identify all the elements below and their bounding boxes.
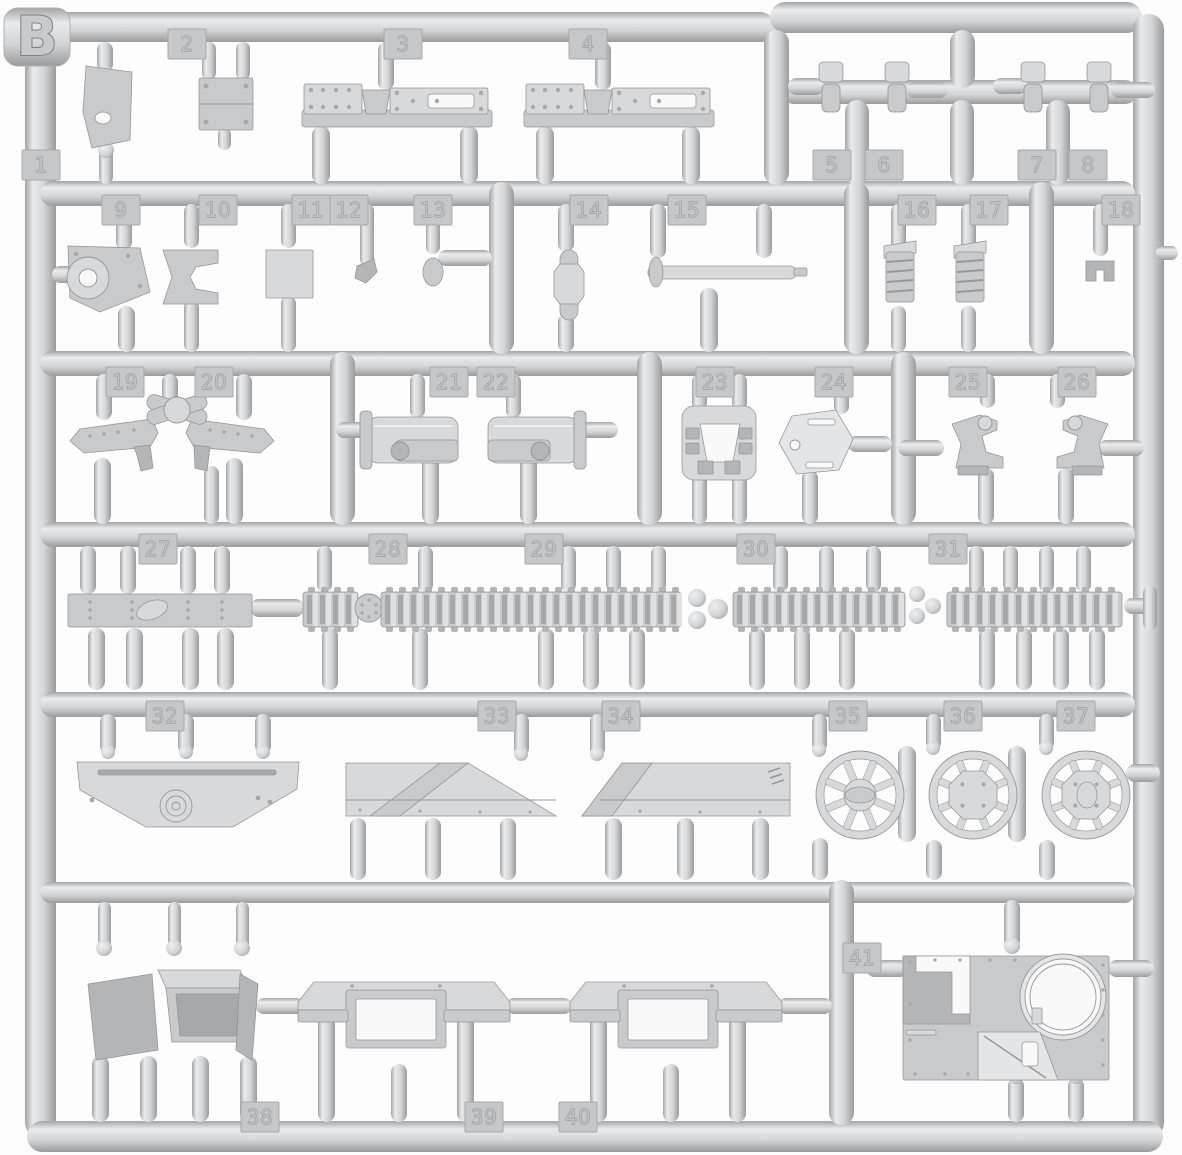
part-number: 20 [201, 370, 227, 394]
sprue-gate-stub [1098, 440, 1144, 456]
rivet-dot [908, 1038, 911, 1041]
sprue-gate-stub [605, 818, 622, 880]
rivet-dot [988, 958, 991, 961]
sprue-runner-bar [829, 880, 854, 1125]
sprue-gate-stub [218, 128, 231, 150]
part-tag-26: 26 [1058, 367, 1096, 397]
rivet-dot [244, 84, 249, 89]
part-detail [362, 90, 390, 114]
ball-joint-stub [514, 747, 528, 761]
sprue-gate-stub [120, 546, 136, 594]
sprue-gate-stub [819, 546, 834, 592]
part-detail [95, 112, 111, 124]
part-number: 2 [180, 32, 193, 56]
ball-joint-stub [101, 745, 115, 759]
part-number: 28 [375, 537, 401, 561]
sprue-gate-stub [969, 546, 984, 592]
sprue-gate-stub [226, 458, 243, 524]
part-detail [808, 419, 835, 425]
part-detail [978, 416, 992, 430]
ball-joint-stub [708, 599, 728, 619]
sprue-runner-bar [330, 352, 355, 525]
part-tag-1: 1 [22, 150, 60, 180]
part-tag-3: 3 [384, 29, 422, 59]
part-tag-33: 33 [478, 701, 516, 731]
rivet-dot [130, 600, 134, 604]
part-number: 39 [471, 1105, 497, 1129]
sprue-gate-stub [500, 818, 516, 880]
rivet-dot [531, 105, 535, 109]
part-tag-11: 11 [292, 195, 330, 225]
rivet-dot [908, 1002, 911, 1005]
sprue-gate-stub [1053, 628, 1069, 690]
rivet-dot [633, 99, 637, 103]
rivet-dot [116, 430, 120, 434]
part-detail [574, 411, 586, 469]
sprue-gate-stub [425, 818, 441, 880]
part-number: 3 [396, 32, 409, 56]
sprue-gate-stub [438, 250, 492, 266]
part-15 [648, 266, 796, 279]
part-detail [531, 442, 549, 460]
sprue-gate-stub [926, 840, 942, 880]
sprue-gate-stub [1126, 764, 1160, 782]
sprue-gate-stub [788, 78, 824, 95]
rivet-dot [130, 616, 134, 620]
part-number: 34 [608, 704, 634, 728]
part-8 [1087, 62, 1111, 82]
sprue-gate-stub [88, 628, 105, 690]
rivet-dot [698, 810, 701, 813]
rivet-dot [236, 432, 240, 436]
part-18 [1086, 261, 1114, 281]
sprue-gate-stub [677, 818, 694, 880]
part-detail [554, 264, 584, 304]
sprue-gate-stub [802, 470, 818, 524]
sprue-runner-bar [40, 882, 1135, 903]
sprue-gate-stub [506, 998, 572, 1014]
rivet-dot [250, 434, 254, 438]
rivet-dot [701, 91, 705, 95]
part-tag-14: 14 [570, 195, 608, 225]
rivet-dot [374, 603, 377, 606]
rivet-dot [268, 800, 273, 805]
rivet-dot [479, 91, 483, 95]
part-detail [1072, 466, 1102, 475]
rivet-dot [617, 91, 621, 95]
part-tag-34: 34 [602, 701, 640, 731]
rivet-dot [367, 615, 370, 618]
rivet-dot [321, 105, 325, 109]
rivet-dot [701, 107, 705, 111]
rivet-dot [88, 434, 92, 438]
ball-joint-stub [590, 747, 604, 761]
part-tag-25: 25 [949, 367, 987, 397]
part-number: 17 [976, 198, 1002, 222]
part-tag-9: 9 [102, 195, 140, 225]
part-detail [158, 970, 248, 988]
part-tag-29: 29 [525, 534, 563, 564]
part-detail [725, 461, 740, 474]
sprue-gate-stub [1076, 546, 1091, 592]
part-detail [716, 1010, 782, 1022]
rivet-dot [556, 105, 560, 109]
rivet-dot [622, 984, 626, 988]
sprue-gate-stub [979, 628, 995, 690]
rivet-dot [569, 105, 573, 109]
sprue-gate-stub [391, 1064, 407, 1122]
rivet-dot [204, 120, 209, 125]
part-detail [176, 994, 240, 1036]
sprue-gate-stub [961, 306, 976, 352]
rivet-dot [958, 958, 961, 961]
part-detail [356, 999, 436, 1040]
part-detail [236, 974, 258, 1060]
part-tag-19: 19 [106, 367, 144, 397]
part-number: 11 [298, 198, 324, 222]
rivet-dot [528, 810, 531, 813]
rivet-dot [132, 428, 136, 432]
part-detail [194, 445, 210, 471]
rivet-dot [88, 608, 92, 612]
sprue-runner-bar [489, 182, 514, 354]
sprue-svg: 1234567891011121314151617181920212223242… [0, 0, 1182, 1155]
rivet-dot [569, 88, 573, 92]
rivet-dot [204, 84, 209, 89]
part-number: 7 [1030, 153, 1043, 177]
sprue-gate-stub [1156, 246, 1178, 260]
part-number: 13 [420, 198, 446, 222]
sprue-gate-stub [898, 440, 944, 456]
part-tag-4: 4 [569, 29, 607, 59]
rivet-dot [347, 105, 351, 109]
part-tag-17: 17 [970, 195, 1008, 225]
sprue-gate-stub [180, 546, 196, 594]
sprue-gate-stub [1068, 1078, 1084, 1122]
sprue-runner-bar [764, 30, 789, 185]
part-detail [906, 1030, 936, 1035]
sprue-gate-stub [118, 306, 135, 352]
rivet-dot [411, 99, 415, 103]
sprue-runner-bar [40, 522, 1135, 547]
part-detail [1068, 416, 1082, 430]
part-10 [163, 250, 218, 304]
part-detail [958, 466, 988, 475]
part-detail [628, 999, 708, 1040]
part-tag-31: 31 [929, 534, 967, 564]
rivet-dot [360, 603, 363, 606]
sprue-gate-stub [80, 546, 96, 594]
rivet-dot [220, 600, 224, 604]
rivet-dot [1101, 1013, 1104, 1016]
rivet-dot [244, 120, 249, 125]
sprue-gate-stub [236, 374, 252, 420]
rivet-dot [543, 105, 547, 109]
part-number: 37 [1063, 704, 1089, 728]
rivet-dot [321, 88, 325, 92]
rivet-dot [186, 608, 190, 612]
sprue-gate-stub [322, 628, 338, 690]
sprue-gate-stub [1108, 960, 1154, 977]
rivet-dot [138, 284, 142, 288]
part-number: 31 [935, 537, 961, 561]
rivet-dot [395, 107, 399, 111]
part-35 [816, 751, 904, 839]
part-tag-13: 13 [414, 195, 452, 225]
rivet-dot [220, 608, 224, 612]
part-number: 12 [336, 198, 362, 222]
part-detail [570, 1010, 620, 1022]
part-26 [1057, 415, 1108, 468]
sprue-gate-stub [866, 546, 881, 592]
sprue-gate-stub [1143, 586, 1157, 630]
part-number: 29 [531, 537, 557, 561]
part-detail [444, 1010, 510, 1022]
part-detail [1024, 84, 1042, 112]
part-12 [355, 259, 377, 283]
sprue-gate-stub [906, 82, 948, 98]
sprue-gate-stub [410, 374, 425, 418]
part-number: 25 [955, 370, 981, 394]
sprue-gate-stub [214, 546, 230, 594]
sprue-gate-stub [1003, 546, 1018, 592]
sprue-gate-stub [749, 628, 765, 690]
sprue-gate-stub [812, 838, 828, 880]
part-tag-41: 41 [843, 943, 881, 973]
sprue-gate-stub [281, 296, 296, 352]
sprue-runner-bar [950, 30, 975, 88]
sprue-gate-stub [1008, 1078, 1024, 1122]
part-number: 8 [1081, 153, 1094, 177]
part-tag-16: 16 [898, 195, 936, 225]
rivet-dot [309, 105, 313, 109]
rivet-dot [638, 809, 641, 812]
rivet-dot [617, 107, 621, 111]
sprue-gate-stub [140, 1056, 157, 1122]
part-number: 19 [112, 370, 138, 394]
part-tag-20: 20 [195, 367, 233, 397]
rivet-dot [1013, 958, 1016, 961]
rivet-dot [710, 984, 714, 988]
sprue-gate-stub [126, 628, 143, 690]
part-tag-27: 27 [139, 534, 177, 564]
rivet-dot [543, 88, 547, 92]
part-detail [806, 462, 833, 468]
sprue-gate-stub [182, 628, 199, 690]
rivet-dot [657, 99, 661, 103]
part-number: 9 [114, 198, 127, 222]
part-detail [134, 445, 153, 471]
part-tag-36: 36 [944, 701, 982, 731]
sprue-gate-stub [663, 1064, 679, 1122]
rivet-dot [220, 616, 224, 620]
sprue-gate-stub [606, 546, 621, 592]
part-tag-30: 30 [737, 534, 775, 564]
part-detail [79, 269, 97, 287]
part-detail [649, 257, 663, 287]
sprue-gate-stub [538, 628, 554, 690]
sprue-gate-stub [978, 468, 994, 524]
part-detail [391, 442, 409, 460]
part-number: 23 [702, 370, 728, 394]
sprue-gate-stub [629, 628, 645, 690]
sprue-gate-stub [204, 466, 219, 524]
ball-joint-stub [909, 608, 925, 624]
part-detail [360, 411, 372, 469]
sprue-photo: 1234567891011121314151617181920212223242… [0, 0, 1182, 1155]
rivet-dot [222, 430, 226, 434]
part-7 [1021, 62, 1045, 82]
part-detail [700, 424, 740, 462]
part-tag-18: 18 [1102, 195, 1140, 225]
rivet-dot [74, 252, 78, 256]
part-tag-40: 40 [559, 1102, 597, 1132]
part-13 [423, 258, 443, 286]
ball-joint-stub [925, 598, 941, 614]
sprue-gate-stub [651, 546, 666, 592]
part-detail [1032, 1008, 1042, 1024]
part-37 [1042, 751, 1130, 839]
ball-joint-stub [234, 940, 250, 956]
rivet-dot [309, 88, 313, 92]
part-tag-15: 15 [668, 195, 706, 225]
sprue-gate-stub [1089, 628, 1105, 690]
rivet-dot [908, 960, 911, 963]
sprue-gate-stub [650, 204, 666, 258]
ball-joint-stub [926, 741, 940, 755]
rivet-dot [435, 99, 439, 103]
rivet-dot [395, 91, 399, 95]
sprue-runner-bar [891, 352, 916, 525]
rivet-dot [556, 88, 560, 92]
part-tag-32: 32 [146, 701, 184, 731]
part-detail [739, 443, 752, 454]
rivet-dot [102, 432, 106, 436]
part-number: 1 [34, 153, 47, 177]
ball-joint-stub [256, 745, 270, 759]
part-detail [794, 268, 807, 276]
sprue-gate-stub [848, 436, 892, 452]
part-11 [266, 250, 313, 298]
part-number: 41 [849, 946, 875, 970]
rivet-dot [126, 254, 130, 258]
part-tag-35: 35 [829, 701, 867, 731]
part-tag-12: 12 [330, 195, 368, 225]
part-number: 36 [950, 704, 976, 728]
ball-joint-stub [812, 743, 826, 757]
part-detail [584, 90, 612, 114]
rivet-dot [531, 88, 535, 92]
rivet-dot [88, 616, 92, 620]
part-detail [888, 84, 906, 112]
rivet-dot [88, 600, 92, 604]
sprue-frame-bar [770, 2, 1142, 33]
part-number: 5 [825, 153, 838, 177]
sprue-letter: B [16, 5, 57, 68]
part-1 [83, 66, 132, 148]
part-38 [88, 974, 158, 1060]
sprue-gate-stub [412, 628, 428, 690]
part-number: 33 [484, 704, 510, 728]
part-number: 38 [247, 1105, 273, 1129]
rivet-dot [438, 984, 442, 988]
rivet-dot [478, 810, 481, 813]
ball-joint-stub [688, 611, 706, 629]
rivet-dot [347, 88, 351, 92]
part-number: 18 [1108, 198, 1134, 222]
part-detail [698, 461, 713, 474]
part-number: 30 [743, 537, 769, 561]
rivet-dot [334, 88, 338, 92]
rivet-dot [1101, 963, 1104, 966]
part-detail [298, 1010, 348, 1022]
sprue-gate-stub [94, 458, 111, 524]
sprue-gate-stub [1039, 840, 1055, 880]
rivet-dot [1101, 1038, 1104, 1041]
rivet-dot [350, 984, 354, 988]
part-number: 22 [483, 370, 509, 394]
rivet-dot [374, 611, 377, 614]
part-number: 35 [835, 704, 861, 728]
part-number: 32 [152, 704, 178, 728]
rivet-dot [933, 958, 936, 961]
rivet-dot [367, 598, 370, 601]
sprue-gate-stub [1111, 82, 1155, 98]
sprue-letter-tab: B [4, 5, 70, 68]
sprue-gate-stub [692, 474, 707, 524]
part-number: 26 [1064, 370, 1090, 394]
part-number: 21 [436, 370, 462, 394]
rivet-dot [1101, 988, 1104, 991]
sprue-gate-stub [839, 628, 855, 690]
part-tag-21: 21 [430, 367, 468, 397]
sprue-runner-bar [950, 100, 974, 185]
ball-joint-stub [688, 589, 706, 607]
part-detail [1022, 1042, 1038, 1066]
rivet-dot [479, 107, 483, 111]
sprue-gate-stub [250, 599, 304, 617]
part-tag-37: 37 [1057, 701, 1095, 731]
part-tag-22: 22 [477, 367, 515, 397]
sprue-gate-stub [1016, 628, 1032, 690]
sprue-gate-stub [256, 998, 304, 1014]
sprue-gate-stub [350, 818, 366, 880]
part-detail [98, 770, 276, 775]
part-detail [526, 84, 584, 114]
part-detail [1090, 84, 1108, 112]
sprue-gate-stub [583, 628, 599, 690]
rivet-dot [943, 1072, 946, 1075]
sprue-gate-stub [236, 42, 250, 80]
ball-joint-stub [166, 940, 182, 956]
part-detail [686, 443, 699, 454]
sprue-gate-stub [92, 1056, 109, 1122]
rivet-dot [186, 600, 190, 604]
ball-joint-stub [1039, 741, 1053, 755]
part-tag-23: 23 [696, 367, 734, 397]
sprue-gate-stub [217, 628, 234, 690]
sprue-runner-bar [1029, 182, 1054, 354]
part-tag-5: 5 [813, 150, 851, 180]
rivet-dot [913, 1072, 916, 1075]
part-tag-10: 10 [199, 195, 237, 225]
ball-joint-stub [909, 586, 925, 602]
sprue-gate-stub [184, 204, 199, 248]
sprue-gate-stub [682, 126, 700, 184]
part-number: 16 [904, 198, 930, 222]
part-number: 15 [674, 198, 700, 222]
ball-joint-stub [96, 940, 112, 956]
